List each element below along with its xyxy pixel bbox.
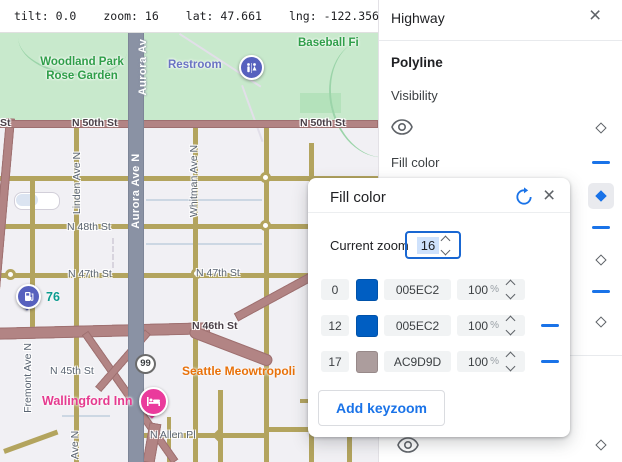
restroom-pin[interactable] (239, 55, 264, 80)
wallingford-inn-label: Wallingford Inn (42, 394, 133, 408)
road-vertical (218, 390, 223, 462)
n48th-label: N 48th St (67, 221, 111, 233)
percent-sign: % (490, 284, 499, 295)
ave-n-label: Ave N (69, 425, 81, 462)
color-swatch[interactable] (356, 315, 378, 337)
alley-dashed (112, 238, 114, 268)
hex-value-field[interactable]: AC9D9D (384, 351, 451, 372)
keyzoom-level[interactable]: 17 (321, 351, 349, 372)
keyzoom-row: 17 AC9D9D 100% (308, 351, 570, 372)
keyzoom-diamond[interactable] (595, 122, 606, 133)
linden-ave-label: Linden Ave N (71, 138, 83, 228)
aurora-ave-label: Aurora Av (137, 33, 149, 102)
roundabout (260, 220, 271, 231)
keyzoom-diamond-selected[interactable] (588, 183, 614, 209)
gas-station-pin[interactable] (16, 284, 41, 309)
seventy-six-label: 76 (46, 290, 60, 304)
stepper-chevrons[interactable] (442, 237, 449, 254)
fill-color-dialog: Fill color × Current zoom 16 0 005EC2 10… (308, 178, 570, 437)
keyzoom-dash[interactable] (592, 290, 610, 293)
lng-readout: lng: -122.356 (289, 9, 379, 23)
keyzoom-diamond[interactable] (595, 316, 606, 327)
street-label: St (0, 117, 11, 129)
opacity-value: 100 (468, 283, 488, 297)
chevron-up-icon[interactable] (506, 316, 516, 326)
baseball-label: Baseball Fi (298, 36, 359, 50)
wallingford-inn-pin[interactable] (139, 387, 168, 416)
minor-road (62, 415, 110, 417)
minor-road (146, 243, 262, 245)
remove-keyzoom-button[interactable] (541, 360, 559, 363)
keyzoom-diamond[interactable] (595, 439, 606, 450)
park-label: Woodland Park Rose Garden (30, 55, 134, 83)
n47th-label: N 47th St (68, 268, 112, 280)
fuel-pump-icon (24, 291, 34, 302)
current-zoom-value[interactable]: 16 (417, 237, 439, 254)
chevron-down-icon[interactable] (506, 290, 516, 300)
lat-readout: lat: 47.661 (186, 9, 262, 23)
percent-sign: % (490, 320, 499, 331)
remove-keyzoom-button[interactable] (541, 324, 559, 327)
keyzoom-level[interactable]: 0 (321, 279, 349, 300)
section-polyline: Polyline (391, 55, 443, 70)
dialog-title: Fill color (330, 189, 386, 206)
road-vertical (30, 176, 35, 336)
restroom-icon (246, 63, 257, 73)
keyzoom-dash[interactable] (592, 226, 610, 229)
current-zoom-label: Current zoom (330, 238, 409, 253)
tilt-readout: tilt: 0.0 (14, 9, 76, 23)
n47th-label: N 47th St (196, 267, 240, 279)
chevron-down-icon[interactable] (506, 362, 516, 372)
zoom-readout: zoom: 16 (103, 9, 158, 23)
opacity-stepper[interactable]: 100% (457, 279, 525, 300)
visibility-eye-icon-2[interactable] (397, 437, 419, 458)
whitman-ave-label: Whitman Ave N (188, 136, 200, 226)
opacity-value: 100 (468, 355, 488, 369)
chevron-up-icon[interactable] (506, 352, 516, 362)
hex-value-field[interactable]: 005EC2 (384, 315, 451, 336)
reset-icon[interactable] (514, 187, 534, 212)
route-99-shield: 99 (135, 354, 156, 374)
keyzoom-dash[interactable] (592, 161, 610, 164)
chevron-down-icon[interactable] (441, 245, 451, 255)
current-zoom-stepper[interactable]: 16 (405, 231, 461, 259)
label-visibility: Visibility (391, 88, 438, 103)
n46th-label: N 46th St (192, 320, 238, 332)
road-fremont-ave (0, 118, 15, 462)
divider (308, 212, 570, 213)
keyzoom-level[interactable]: 12 (321, 315, 349, 336)
divider (379, 40, 622, 41)
color-swatch[interactable] (356, 279, 378, 301)
bed-icon (147, 397, 160, 406)
n50th-label: N 50th St (300, 117, 346, 129)
panel-close-icon[interactable]: × (589, 6, 601, 26)
panel-title: Highway (391, 10, 445, 26)
n45th-label: N 45th St (50, 365, 94, 377)
aurora-ave-label: Aurora Ave N (130, 146, 142, 236)
opacity-stepper[interactable]: 100% (457, 351, 525, 372)
percent-sign: % (490, 356, 499, 367)
visibility-eye-icon[interactable] (391, 119, 413, 140)
chevron-down-icon[interactable] (506, 326, 516, 336)
fremont-ave-label: Fremont Ave N (22, 332, 34, 424)
chevron-up-icon[interactable] (441, 235, 451, 245)
label-fill-color: Fill color (391, 155, 439, 170)
chevron-up-icon[interactable] (506, 280, 516, 290)
n50th-label: N 50th St (72, 117, 118, 129)
minor-road (146, 199, 262, 201)
restroom-label: Restroom (168, 59, 222, 71)
hex-value-field[interactable]: 005EC2 (384, 279, 451, 300)
keyzoom-row: 12 005EC2 100% (308, 315, 570, 336)
road-diagonal (3, 430, 58, 454)
opacity-stepper[interactable]: 100% (457, 315, 525, 336)
dialog-close-icon[interactable]: × (543, 186, 555, 206)
opacity-value: 100 (468, 319, 488, 333)
roundabout (5, 269, 16, 280)
stepper-chevrons[interactable] (507, 281, 514, 298)
color-swatch[interactable] (356, 351, 378, 373)
map-status-bar: tilt: 0.0 zoom: 16 lat: 47.661 lng: -122… (0, 0, 378, 33)
n-allen-pl-label: N Allen Pl (150, 429, 196, 441)
stepper-chevrons[interactable] (507, 353, 514, 370)
add-keyzoom-button[interactable]: Add keyzoom (318, 390, 445, 426)
poi-meowtropolis-label: Seattle Meowtropoli (182, 364, 295, 378)
keyzoom-row: 0 005EC2 100% (308, 279, 570, 300)
keyzoom-diamond[interactable] (595, 254, 606, 265)
diamond-icon (595, 190, 606, 201)
stepper-chevrons[interactable] (507, 317, 514, 334)
roundabout (260, 172, 271, 183)
